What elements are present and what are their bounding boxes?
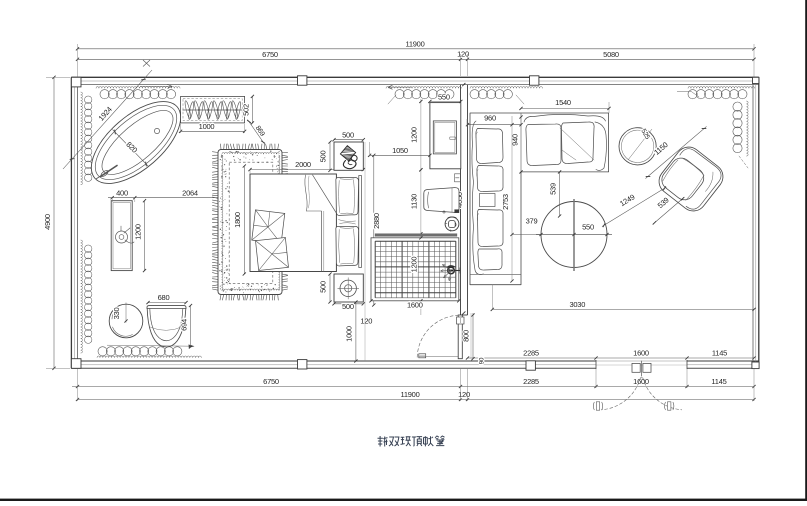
- svg-text:1145: 1145: [712, 349, 727, 358]
- svg-text:1050: 1050: [392, 146, 408, 155]
- svg-text:694: 694: [180, 319, 189, 331]
- svg-text:379: 379: [526, 217, 538, 226]
- svg-text:2064: 2064: [182, 188, 198, 197]
- svg-text:800: 800: [461, 330, 470, 342]
- svg-text:6750: 6750: [262, 50, 278, 59]
- svg-text:11900: 11900: [405, 39, 424, 48]
- svg-text:400: 400: [116, 188, 128, 197]
- svg-text:1200: 1200: [133, 224, 142, 240]
- svg-text:1200: 1200: [410, 257, 419, 273]
- svg-text:4900: 4900: [43, 214, 52, 230]
- svg-text:6750: 6750: [263, 377, 279, 386]
- svg-text:2880: 2880: [372, 213, 381, 229]
- svg-text:960: 960: [484, 113, 496, 122]
- svg-text:3030: 3030: [569, 300, 585, 309]
- svg-text:1145: 1145: [711, 377, 726, 386]
- svg-text:2753: 2753: [501, 194, 510, 210]
- svg-text:1600: 1600: [633, 349, 649, 358]
- svg-text:1000: 1000: [344, 326, 353, 342]
- svg-text:2285: 2285: [523, 377, 539, 386]
- svg-text:120: 120: [457, 50, 469, 59]
- svg-text:1130: 1130: [410, 194, 419, 209]
- svg-text:90: 90: [479, 357, 486, 364]
- svg-text:550: 550: [438, 93, 450, 102]
- svg-text:550: 550: [582, 223, 594, 232]
- svg-text:539: 539: [548, 183, 557, 195]
- svg-text:502: 502: [241, 104, 250, 116]
- svg-text:120: 120: [360, 317, 372, 326]
- svg-text:1000: 1000: [199, 122, 215, 131]
- svg-text:680: 680: [158, 293, 170, 302]
- svg-text:1600: 1600: [633, 377, 649, 386]
- svg-text:500: 500: [318, 151, 327, 163]
- svg-text:500: 500: [342, 130, 354, 139]
- svg-text:5080: 5080: [603, 50, 619, 59]
- svg-text:330: 330: [112, 308, 121, 320]
- svg-text:2000: 2000: [295, 160, 311, 169]
- svg-text:1600: 1600: [407, 301, 423, 310]
- svg-text:500: 500: [318, 281, 327, 293]
- svg-text:1540: 1540: [555, 98, 571, 107]
- svg-text:1800: 1800: [233, 212, 242, 228]
- svg-text:940: 940: [510, 134, 519, 146]
- svg-text:500: 500: [342, 302, 354, 311]
- svg-text:120: 120: [458, 390, 470, 399]
- svg-text:11900: 11900: [400, 390, 419, 399]
- svg-text:2285: 2285: [523, 349, 539, 358]
- svg-text:1200: 1200: [410, 127, 419, 143]
